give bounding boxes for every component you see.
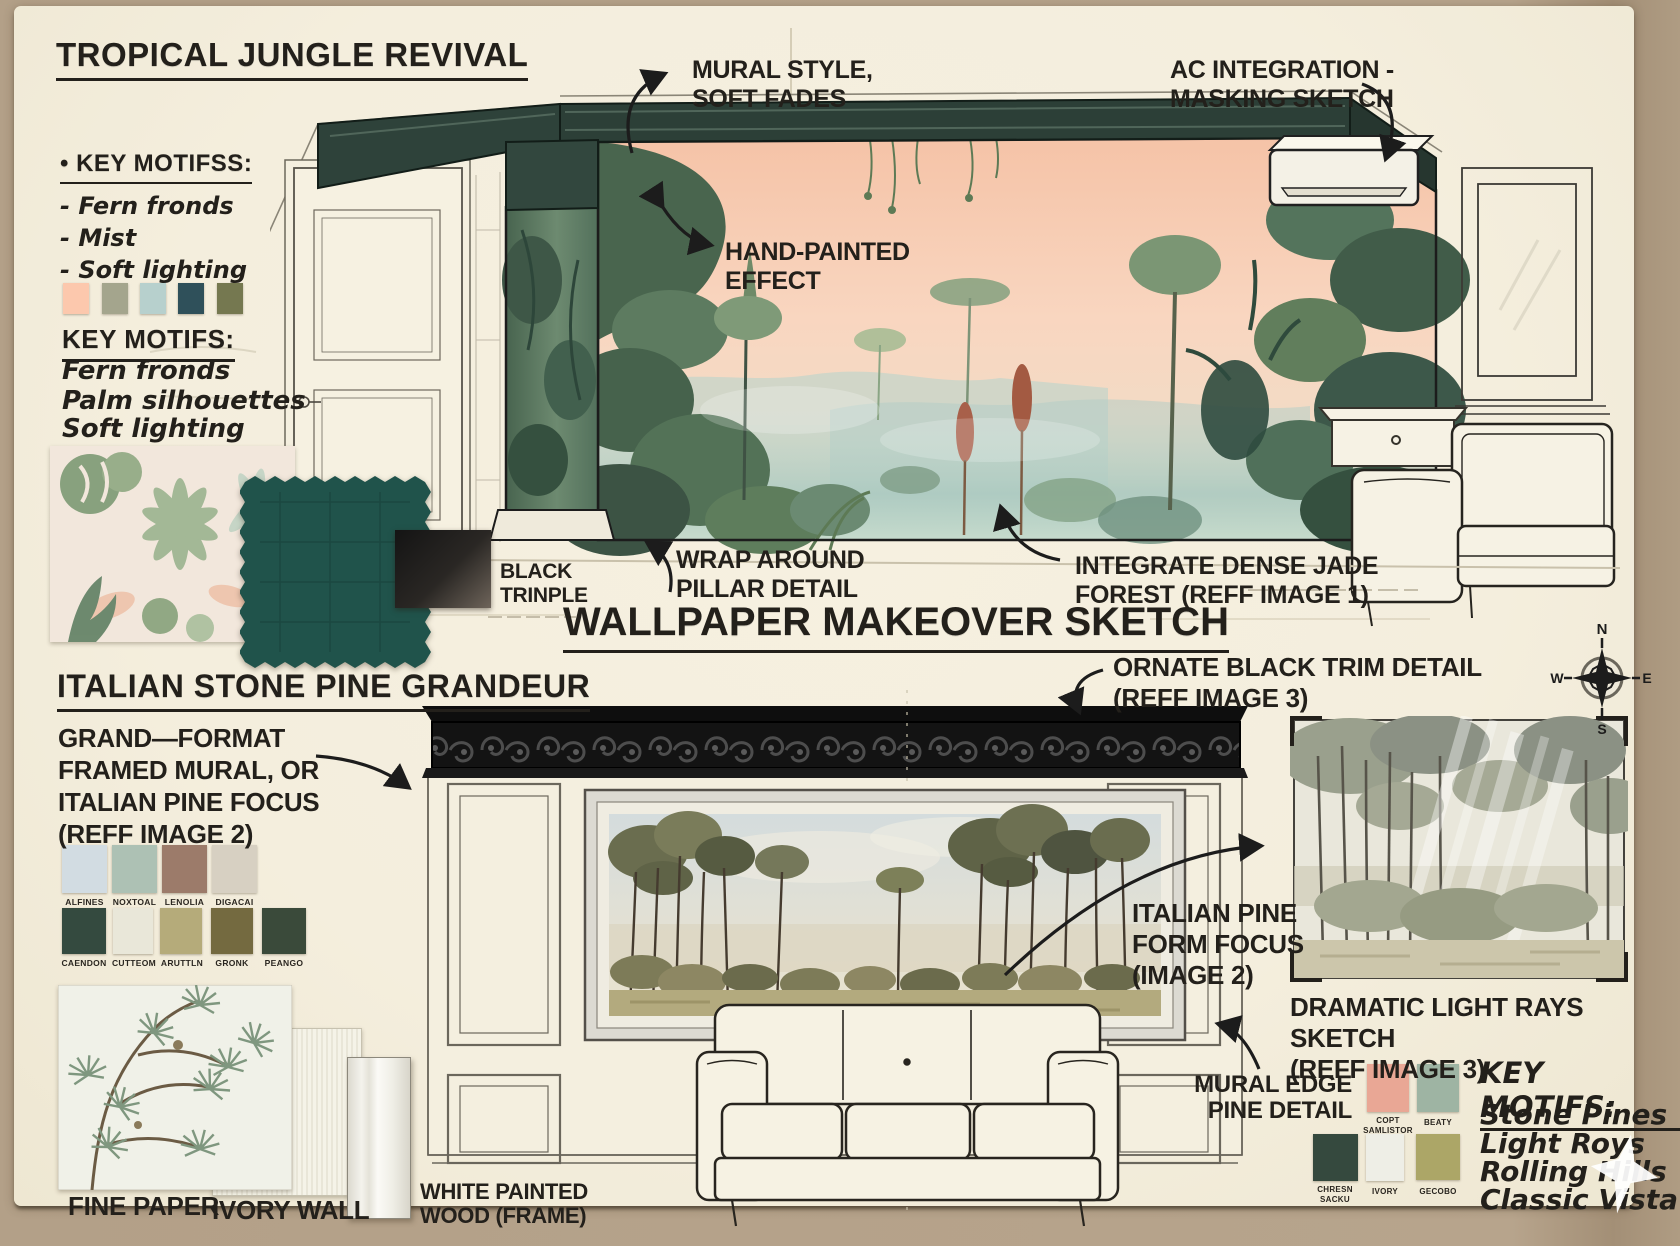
bullet-item-fern: - Fern fronds	[60, 192, 234, 220]
swatch-label: ARUTTLN	[156, 958, 208, 969]
framed-pine-mural	[585, 790, 1185, 1040]
black-trim-swatch	[395, 530, 491, 608]
compass-w: W	[1550, 670, 1564, 686]
compass-n: N	[1597, 621, 1608, 638]
mood-board-page: TROPICAL JUNGLE REVIVAL • KEY MOTIFSS: -…	[0, 0, 1680, 1246]
pine-mural-picture	[608, 804, 1161, 1016]
palette-swatch	[1313, 1134, 1358, 1181]
swatch-label: GECOBO	[1410, 1187, 1466, 1197]
palette-swatch	[62, 845, 107, 893]
annotation-pine-focus: ITALIAN PINE FORM FOCUS (IMAGE 2)	[1132, 898, 1304, 991]
compass-e: E	[1642, 670, 1651, 686]
tropical-title-text: TROPICAL JUNGLE REVIVAL	[56, 36, 528, 81]
palette-swatch	[212, 845, 257, 893]
bullet-item-mist: - Mist	[60, 224, 136, 252]
key-motifss-heading: • KEY MOTIFSS:	[60, 150, 252, 184]
swatch-label: ALFINES	[58, 897, 111, 908]
sparkle-icon	[1588, 1134, 1658, 1214]
swatch-label: COPT SAMLISTOR	[1354, 1116, 1422, 1136]
annotation-mural-edge: MURAL EDGE PINE DETAIL	[1180, 1072, 1352, 1124]
fine-paper-swatch	[58, 985, 292, 1190]
palette-swatch	[178, 283, 204, 314]
palette-swatch	[63, 283, 89, 314]
annotation-ornate-trim: ORNATE BLACK TRIM DETAIL (REFF IMAGE 3)	[1113, 652, 1482, 714]
white-wood-label: WHITE PAINTED WOOD (FRAME)	[420, 1180, 588, 1228]
ornate-cornice	[422, 706, 1248, 778]
sofa-sketch-bottom	[697, 1005, 1118, 1226]
annotation-wrap-around: WRAP AROUND PILLAR DETAIL	[676, 546, 864, 603]
fine-paper-label: FINE PAPER	[68, 1192, 219, 1222]
palette-swatch	[262, 908, 306, 954]
section-title-tropical: TROPICAL JUNGLE REVIVAL	[56, 36, 528, 81]
palette-swatch	[211, 908, 253, 954]
reference-image-light-rays	[1290, 716, 1628, 982]
motif-palm: Palm silhouettes	[62, 386, 306, 416]
swatch-label: BEATY	[1414, 1118, 1462, 1128]
palette-swatch	[217, 283, 243, 314]
annotation-mural-style: MURAL STYLE, SOFT FADES	[692, 56, 873, 113]
swatch-label: CUTTEOM	[108, 958, 160, 969]
palette-swatch	[1416, 1134, 1460, 1180]
palette-swatch	[102, 283, 128, 314]
ivory-wall-label: IVORY WALL	[212, 1196, 369, 1226]
compass-rose-icon: N E S W	[1548, 620, 1658, 740]
motif-fern: Fern fronds	[62, 356, 230, 386]
annotation-hand-painted: HAND-PAINTED EFFECT	[725, 238, 910, 295]
swatch-label: CAENDON	[58, 958, 110, 969]
swatch-label: DIGACAI	[208, 897, 261, 908]
annotation-ac-integration: AC INTEGRATION - MASKING SKETCH	[1170, 56, 1394, 113]
palette-swatch	[162, 845, 207, 893]
side-table-sketch	[1320, 408, 1466, 466]
palette-swatch	[62, 908, 106, 954]
swatch-label: PEANGO	[258, 958, 310, 969]
ac-unit-sketch	[1270, 136, 1432, 205]
swatch-label: CHRESN SACKU	[1305, 1185, 1365, 1205]
swatch-label: GRONK	[206, 958, 258, 969]
palette-swatch	[112, 845, 157, 893]
palette-swatch	[160, 908, 202, 954]
grand-format-note: GRAND—FORMAT FRAMED MURAL, OR ITALIAN PI…	[58, 722, 319, 850]
swatch-label: NOXTOAL	[108, 897, 161, 908]
window-sketch	[1455, 168, 1610, 414]
palette-swatch	[140, 283, 166, 314]
section-title-italian: ITALIAN STONE PINE GRANDEUR	[57, 668, 590, 712]
swatch-label: LENOLIA	[158, 897, 211, 908]
center-title: WALLPAPER MAKEOVER SKETCH	[563, 600, 1229, 653]
palette-swatch	[1366, 1134, 1404, 1181]
compass-s: S	[1597, 721, 1606, 737]
swatch-label: IVORY	[1362, 1187, 1408, 1197]
motif-lighting: Soft lighting	[62, 414, 245, 444]
bullet-item-lighting: - Soft lighting	[60, 256, 247, 284]
palette-swatch	[113, 908, 153, 954]
interior-sketch-lines	[476, 172, 500, 545]
